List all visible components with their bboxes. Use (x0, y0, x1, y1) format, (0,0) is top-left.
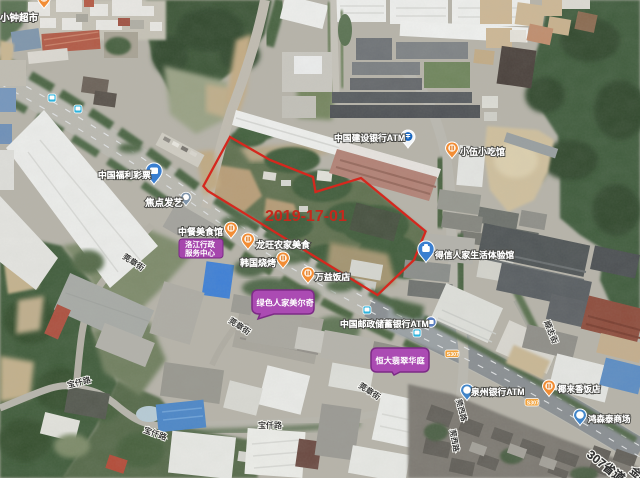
svg-text:宝仟路: 宝仟路 (258, 420, 282, 430)
svg-text:恒大翡翠华庭: 恒大翡翠华庭 (376, 356, 426, 366)
svg-text:韩国烧烤: 韩国烧烤 (240, 257, 276, 268)
svg-text:顺志街: 顺志街 (542, 319, 560, 345)
svg-text:椰来香饭店: 椰来香饭店 (558, 384, 601, 394)
svg-text:小钟超市: 小钟超市 (0, 12, 39, 24)
svg-text:洛江行政: 洛江行政 (185, 239, 215, 249)
svg-text:龙旺农家美食: 龙旺农家美食 (255, 239, 311, 250)
svg-text:莞章街: 莞章街 (357, 380, 383, 401)
svg-text:绿色人家美尔奇: 绿色人家美尔奇 (257, 298, 314, 308)
svg-text:金福街: 金福街 (626, 463, 640, 478)
svg-text:宝仟路: 宝仟路 (66, 374, 92, 390)
svg-text:中国福利彩票: 中国福利彩票 (98, 169, 151, 180)
svg-text:莞章街: 莞章街 (121, 251, 147, 272)
svg-text:宝仟路: 宝仟路 (142, 424, 168, 442)
svg-text:泉州银行ATM: 泉州银行ATM (470, 386, 525, 397)
svg-text:鸿森泰商场: 鸿森泰商场 (588, 414, 631, 424)
svg-text:莞西路: 莞西路 (448, 429, 462, 453)
svg-text:服务中心: 服务中心 (185, 248, 215, 258)
svg-text:中国建设银行ATM: 中国建设银行ATM (334, 132, 405, 143)
svg-text:焦点发艺: 焦点发艺 (144, 197, 184, 209)
svg-text:2019-17-01: 2019-17-01 (265, 208, 347, 225)
svg-text:S307: S307 (447, 352, 459, 358)
svg-text:中国邮政储蓄银行ATM: 中国邮政储蓄银行ATM (340, 318, 429, 329)
svg-text:莞章街: 莞章街 (227, 315, 253, 336)
svg-text:307省道: 307省道 (584, 447, 628, 478)
svg-text:中餐美食馆: 中餐美食馆 (178, 226, 223, 237)
svg-text:万益饭店: 万益饭店 (314, 271, 350, 282)
svg-text:S307: S307 (527, 401, 539, 407)
svg-text:得信人家生活体验馆: 得信人家生活体验馆 (434, 249, 514, 260)
svg-text:莞西路: 莞西路 (454, 398, 470, 423)
svg-text:小伍小吃馆: 小伍小吃馆 (459, 146, 505, 157)
